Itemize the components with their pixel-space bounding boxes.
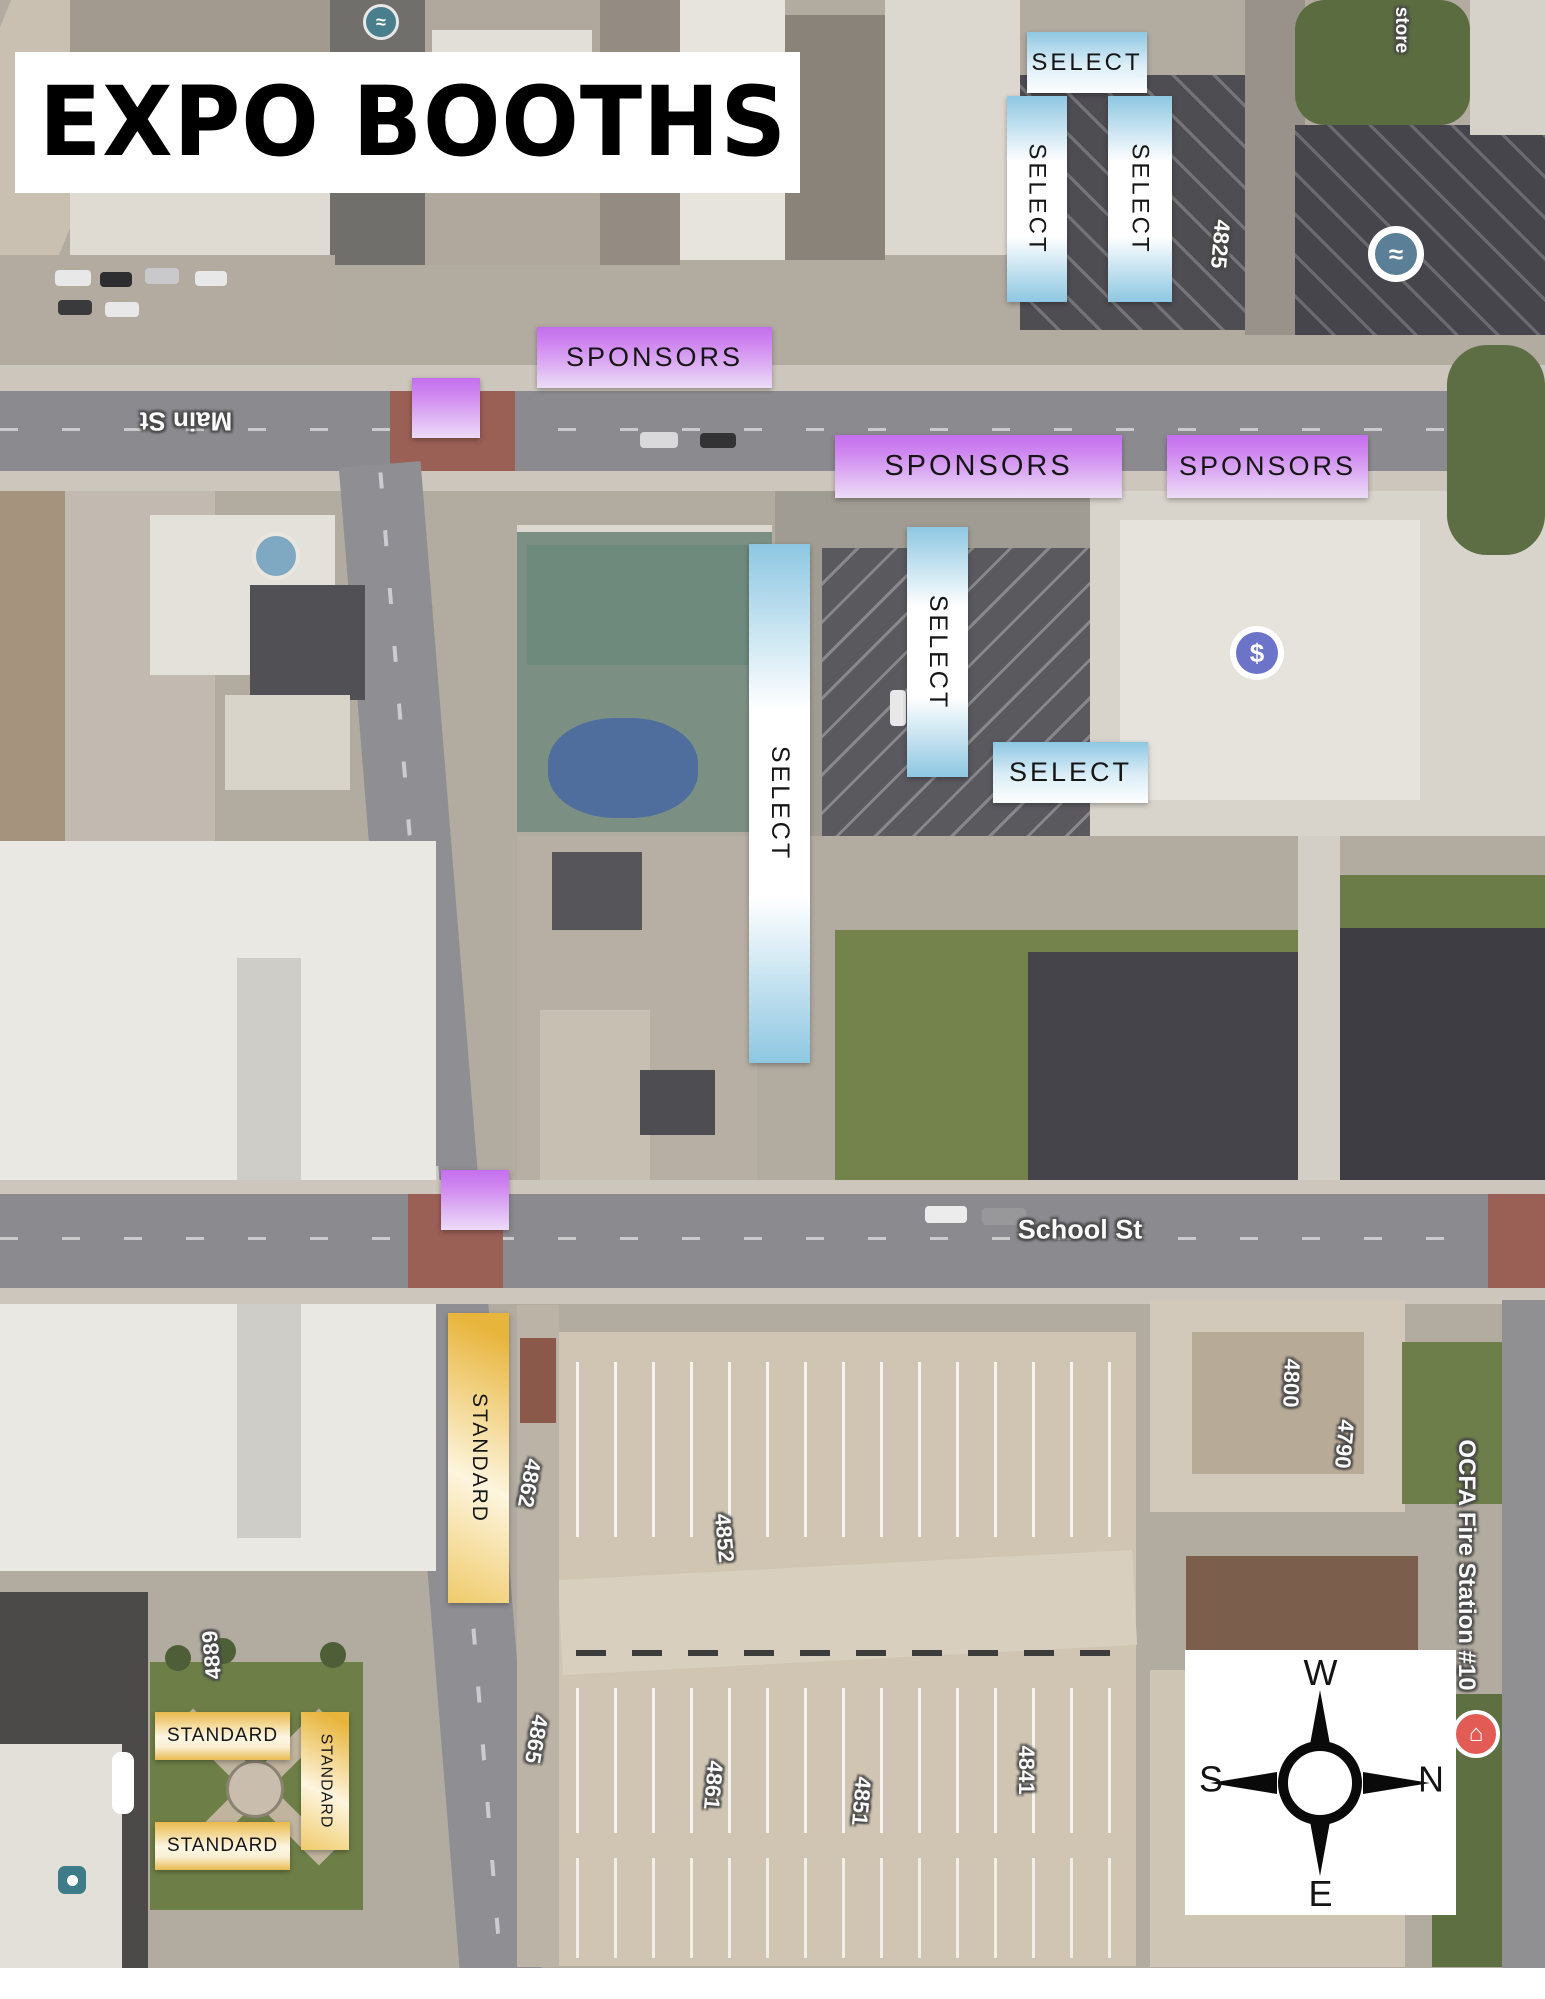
standard-booth-park-top: STANDARD [155,1712,290,1760]
map-roof-block [552,852,642,930]
teal-marker [58,1866,86,1894]
compass-west-label: W [1304,1652,1338,1694]
address-label: 4861 [698,1759,728,1810]
booth-label: SELECT [765,746,794,861]
booth-label: SPONSORS [884,450,1072,483]
marker-dot [67,1875,78,1886]
map-roof-block [640,1070,715,1135]
map-fountain [226,1760,284,1818]
map-roof-red [520,1338,556,1423]
map-roof-teal-building [527,545,762,665]
map-roof-block [785,15,885,260]
select-booth-top-right: SELECT [1108,96,1172,302]
dollar-icon: $ [1236,632,1278,674]
map-car [145,268,179,284]
map-brick-crosswalk [1488,1194,1545,1288]
map-roof-block [250,585,365,700]
booth-label: SELECT [1023,143,1051,254]
address-label: 4851 [846,1775,876,1826]
expo-booth-map: $ ≈ ≈ ⌂ Main St School St 4825 4800 4790… [0,0,1545,1999]
title-banner: EXPO BOOTHS [15,52,800,193]
map-sidewalk [0,1180,1545,1194]
place-label-fire-station: OCFA Fire Station #10 [1452,1439,1480,1690]
map-palm-tree [320,1642,346,1668]
booth-label: STANDARD [167,1725,278,1747]
booth-label: SPONSORS [1179,451,1356,482]
page-title: EXPO BOOTHS [39,52,787,193]
map-car [195,271,227,286]
map-roof-house [1028,952,1298,1180]
map-sidewalk [0,365,1545,391]
compass-rose-icon [1205,1690,1435,1876]
map-palm-tree [165,1645,191,1671]
compass-east-label: E [1308,1873,1332,1915]
pool-poi-pin: ≈ [1368,226,1424,282]
map-shade-sail [225,695,350,790]
map-road-school-st [0,1194,1545,1288]
dollar-poi-pin: $ [1230,626,1284,680]
select-booth-east: SELECT [993,742,1148,803]
map-car [890,690,906,726]
compass-north-label: N [1418,1758,1444,1800]
map-trees [1295,0,1470,125]
compass-box: W N E S [1185,1650,1456,1915]
map-trees [1447,345,1545,555]
map-car [100,272,132,287]
address-label: 4841 [1013,1746,1039,1795]
map-walkway [1298,836,1340,1192]
sponsors-square-main-st [412,378,480,438]
address-label: 4825 [1205,218,1235,269]
standard-booth-park-side: STANDARD [301,1712,349,1850]
booth-label: STANDARD [316,1734,334,1829]
sponsors-square-school-st [441,1170,509,1230]
map-parking-stalls [576,1362,1121,1537]
place-label-store: store [1390,7,1412,53]
sponsors-booth-middle: SPONSORS [835,435,1122,498]
pool-poi-top: ≈ [363,4,399,40]
map-pool [252,532,300,580]
map-roof-house [1338,928,1545,1180]
map-parking-dark [1295,125,1545,335]
map-roof-block [885,0,1020,255]
map-parking-stalls [576,1858,1121,1958]
map-car [105,302,139,317]
map-blue-tarp [548,718,698,818]
map-roof-block [540,1010,650,1180]
map-car [58,300,92,315]
map-car [925,1206,967,1223]
fire-station-pin: ⌂ [1452,1710,1500,1758]
street-label-school-st: School St [1018,1215,1143,1246]
booth-label: SELECT [923,594,952,709]
address-label: 4889 [197,1629,227,1680]
map-road-right [1502,1300,1545,1968]
booth-label: SELECT [1031,49,1142,77]
street-label-main-st: Main St [140,406,232,437]
booth-label: STANDARD [167,1835,278,1857]
map-white-marker [112,1752,134,1814]
standard-booth-park-bottom: STANDARD [155,1822,290,1870]
select-booth-top: SELECT [1027,32,1147,93]
map-roof-block [1470,0,1545,135]
address-label: 4800 [1277,1358,1305,1408]
wave-icon: ≈ [376,12,386,33]
station-icon: ⌂ [1469,1720,1484,1748]
booth-label: SPONSORS [566,342,743,373]
compass-south-label: S [1199,1758,1223,1800]
address-label: 4852 [709,1512,739,1563]
map-roof-block [0,1744,122,1970]
map-car [55,270,91,286]
address-label: 4790 [1329,1418,1359,1469]
sponsors-booth-right: SPONSORS [1167,435,1368,498]
booth-label: SELECT [1126,143,1154,254]
map-hill-strip [0,491,65,841]
select-booth-top-left: SELECT [1007,96,1067,302]
standard-booth-long: STANDARD [448,1313,509,1603]
map-car [640,432,678,448]
map-lane-dashes [0,1237,1545,1240]
map-car [700,433,736,448]
booth-label: SELECT [1009,757,1132,788]
map-edge-strip [0,1968,1545,1999]
wave-icon: ≈ [1375,233,1417,275]
sponsors-booth-main-st: SPONSORS [537,327,772,388]
select-booth-middle: SELECT [907,527,968,777]
map-parking-divider [576,1650,1121,1656]
booth-label: STANDARD [467,1393,491,1523]
select-booth-long: SELECT [749,544,810,1063]
